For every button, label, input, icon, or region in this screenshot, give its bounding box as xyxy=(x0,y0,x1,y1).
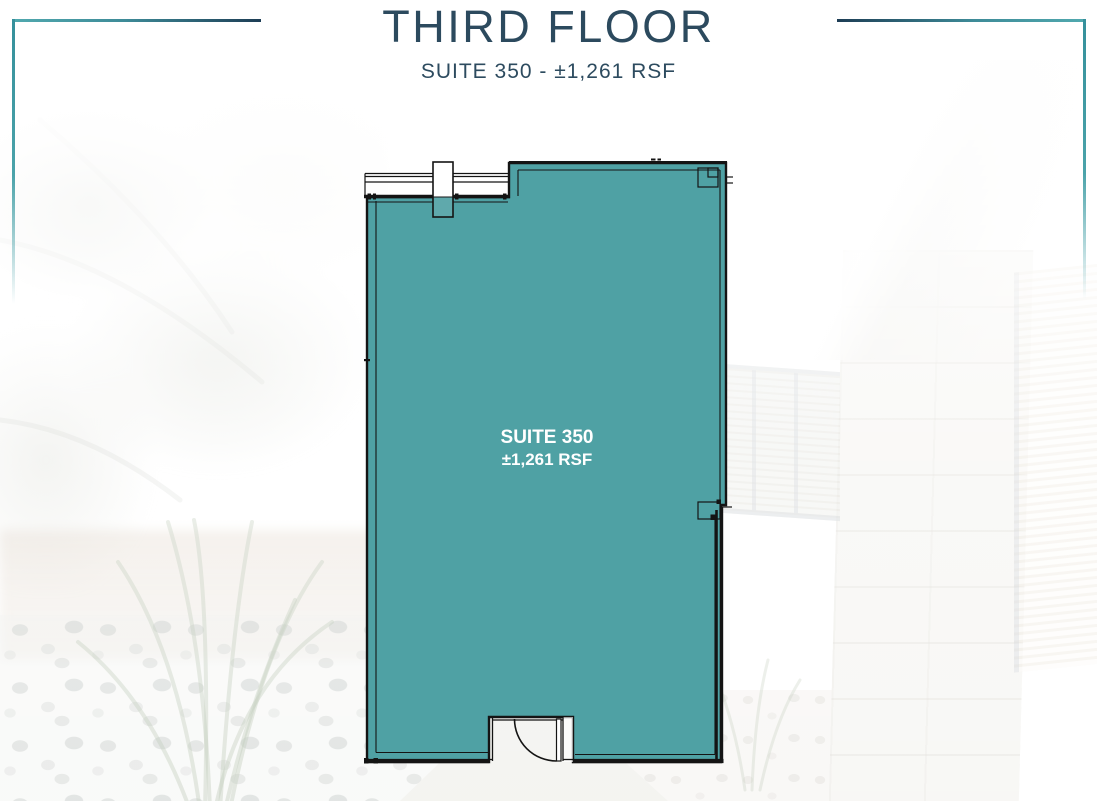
suite-label-area: ±1,261 RSF xyxy=(387,449,707,471)
floorplan-svg xyxy=(0,0,1097,801)
door-swing xyxy=(488,717,573,762)
suite-label: SUITE 350 ±1,261 RSF xyxy=(387,427,707,471)
column-mullion xyxy=(433,162,453,217)
suite-label-name: SUITE 350 xyxy=(387,427,707,449)
flyer-page: THIRD FLOOR SUITE 350 - ±1,261 RSF xyxy=(0,0,1097,801)
